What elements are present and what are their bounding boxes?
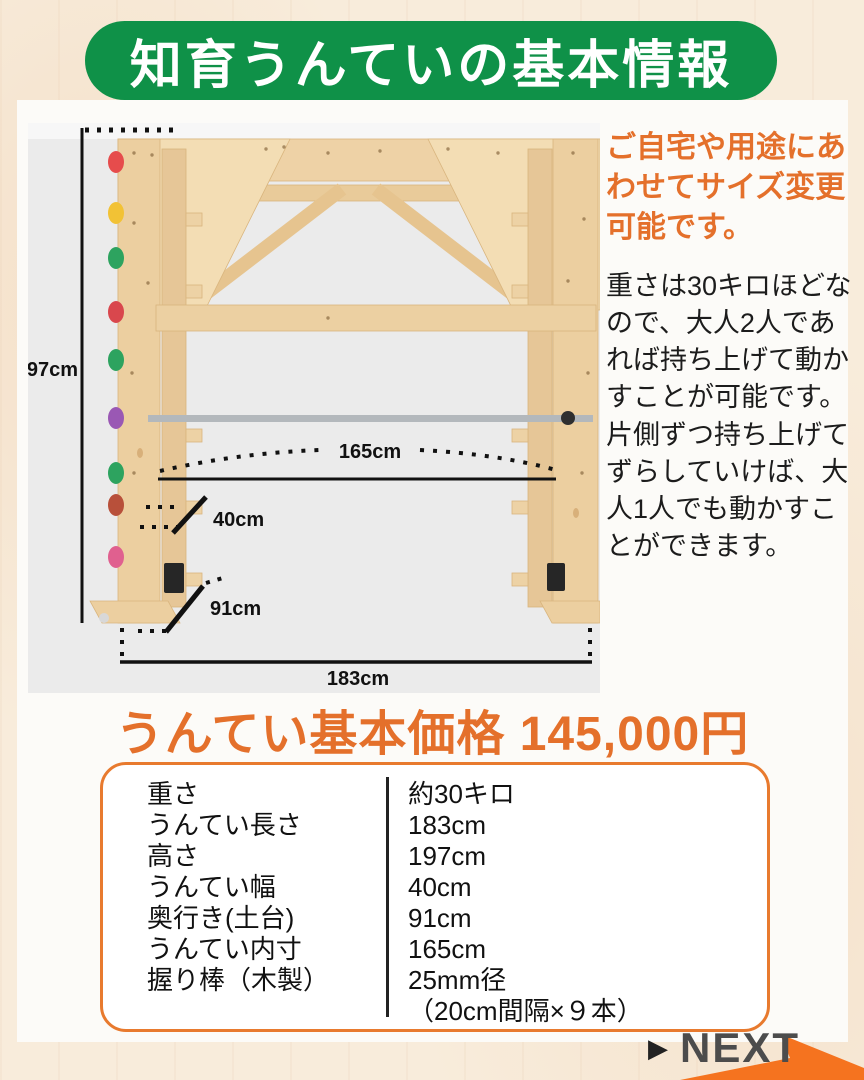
middle-beam (156, 305, 596, 331)
spec-label: 握り棒（木製） (147, 965, 329, 996)
right-post (553, 139, 598, 623)
right-bracket (547, 563, 565, 591)
hold-red (108, 151, 124, 173)
spec-value: 183cm (408, 810, 643, 841)
wood-knot (573, 508, 579, 518)
spec-value: 91cm (408, 903, 643, 934)
spec-label: 奥行き(土台) (147, 903, 329, 934)
wood-frame (90, 139, 600, 623)
page-title: 知育うんていの基本情報 (130, 23, 732, 98)
left-post (118, 139, 160, 623)
photo-top-band (28, 123, 600, 139)
spec-value: 197cm (408, 841, 643, 872)
spec-value: 165cm (408, 934, 643, 965)
metal-bar (148, 415, 593, 422)
hold-green (108, 247, 124, 269)
price-heading: うんてい基本価格 145,000円 (17, 694, 848, 764)
spec-label: 高さ (147, 841, 329, 872)
dim-length-label: 183cm (327, 668, 389, 690)
dim-width-label: 40cm (213, 509, 264, 531)
move-paragraph: 片側ずつ持ち上げてずらしていけば、大人1人でも動かすことができます。 (606, 417, 852, 566)
weight-paragraph: 重さは30キロほどなので、大人2人であれば持ち上げて動かすことが可能です。 (606, 268, 852, 417)
caster-wheel (99, 613, 109, 623)
product-diagram: 197cm 165cm 40cm 91cm 183cm (28, 123, 600, 693)
spec-value: 40cm (408, 872, 643, 903)
bar-knob (561, 411, 575, 425)
size-change-note: ご自宅や用途にあわせてサイズ変更可能です。 (606, 128, 852, 248)
content-card: 197cm 165cm 40cm 91cm 183cm ご自宅や用途にあわせてサ… (17, 100, 848, 1042)
right-foot (540, 601, 600, 623)
spec-value: 約30キロ (408, 779, 643, 810)
wood-knot (137, 448, 143, 458)
hold-purple (108, 407, 124, 429)
hold-pink (108, 546, 124, 568)
depth-dotted-top (206, 577, 226, 583)
monkey-bars-illustration: 197cm 165cm 40cm 91cm 183cm (28, 123, 600, 693)
left-inner-rail (162, 149, 186, 607)
info-column: ご自宅や用途にあわせてサイズ変更可能です。 重さは30キロほどなので、大人2人で… (606, 128, 852, 566)
climbing-holds (108, 151, 124, 568)
play-icon: ▶ (648, 1035, 668, 1061)
hold-green (108, 349, 124, 371)
hold-yellow (108, 202, 124, 224)
spec-label: 重さ (147, 779, 329, 810)
hold-brown (108, 494, 124, 516)
spec-table: 重さ うんてい長さ 高さ うんてい幅 奥行き(土台) うんてい内寸 握り棒（木製… (100, 762, 770, 1032)
spec-label: うんてい内寸 (147, 934, 329, 965)
spec-value-column: 約30キロ 183cm 197cm 40cm 91cm 165cm 25mm径 … (408, 779, 643, 1027)
next-label: NEXT (680, 1024, 800, 1072)
spec-value: 25mm径 (408, 965, 643, 996)
right-inner-rail (528, 149, 552, 607)
dim-inner-label: 165cm (339, 441, 401, 463)
hold-red (108, 301, 124, 323)
title-banner: 知育うんていの基本情報 (85, 21, 777, 100)
spec-label: うんてい幅 (147, 872, 329, 903)
table-divider (386, 777, 389, 1017)
spec-value-note: （20cm間隔×９本） (408, 996, 643, 1027)
dim-height-label: 197cm (28, 359, 78, 381)
spec-label: うんてい長さ (147, 810, 329, 841)
dimension-labels: 197cm 165cm 40cm 91cm 183cm (28, 359, 401, 690)
hold-green (108, 462, 124, 484)
left-bracket (164, 563, 184, 593)
spec-label-column: 重さ うんてい長さ 高さ うんてい幅 奥行き(土台) うんてい内寸 握り棒（木製… (147, 779, 329, 996)
next-button[interactable]: ▶ NEXT (648, 1024, 800, 1072)
dim-depth-label: 91cm (210, 598, 261, 620)
